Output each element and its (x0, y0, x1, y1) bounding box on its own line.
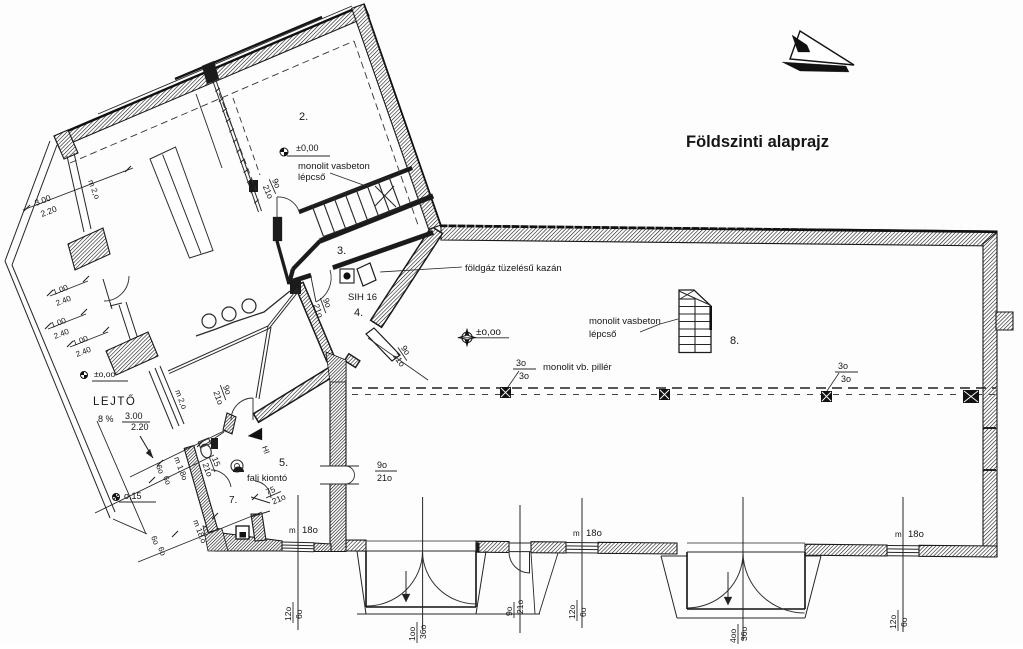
svg-text:fali kiontó: fali kiontó (247, 473, 287, 484)
svg-text:lépcső: lépcső (589, 329, 616, 340)
svg-text:3.: 3. (337, 245, 346, 257)
svg-text:3.00: 3.00 (125, 411, 143, 421)
svg-text:±o,oo: ±o,oo (94, 369, 115, 379)
svg-text:12o: 12o (888, 615, 898, 629)
svg-text:6o: 6o (899, 617, 909, 627)
svg-text:monolit vasbeton: monolit vasbeton (589, 316, 661, 327)
svg-text:12o: 12o (567, 605, 577, 619)
svg-text:3o: 3o (519, 371, 529, 381)
svg-text:12o: 12o (283, 607, 293, 621)
svg-text:monolit vb. pillér: monolit vb. pillér (543, 362, 612, 373)
svg-text:m: m (895, 530, 902, 539)
svg-text:földgáz tüzelésű kazán: földgáz tüzelésű kazán (465, 263, 562, 274)
svg-text:3o: 3o (516, 358, 526, 368)
svg-text:8.: 8. (730, 335, 739, 347)
svg-text:±0,00: ±0,00 (296, 143, 318, 153)
svg-text:7.: 7. (229, 495, 237, 506)
svg-text:18o: 18o (302, 525, 318, 536)
svg-text:18o: 18o (908, 529, 924, 540)
svg-text:4oo: 4oo (728, 629, 738, 643)
svg-text:3o: 3o (841, 374, 851, 384)
svg-text:6o: 6o (294, 609, 304, 619)
svg-text:SIH 16: SIH 16 (348, 292, 377, 303)
svg-text:Földszinti alaprajz: Földszinti alaprajz (686, 133, 829, 151)
svg-text:LEJTŐ: LEJTŐ (93, 394, 136, 408)
svg-text:36o: 36o (418, 625, 428, 639)
svg-text:o,15: o,15 (124, 491, 142, 501)
svg-text:5.: 5. (279, 457, 288, 469)
svg-text:2.: 2. (299, 111, 308, 123)
svg-text:18o: 18o (586, 528, 602, 539)
svg-text:8 %: 8 % (98, 414, 114, 424)
svg-text:9o: 9o (504, 606, 514, 616)
svg-text:2.20: 2.20 (131, 422, 149, 432)
svg-text:21o: 21o (377, 473, 392, 483)
svg-text:9o: 9o (377, 460, 387, 470)
svg-text:±o,oo: ±o,oo (476, 327, 501, 338)
svg-text:21o: 21o (515, 600, 525, 614)
svg-text:4.: 4. (354, 307, 363, 319)
svg-text:m: m (289, 526, 296, 535)
svg-text:36o: 36o (739, 627, 749, 641)
svg-text:m: m (573, 529, 580, 538)
svg-text:3o: 3o (838, 361, 848, 371)
svg-text:lépcső: lépcső (298, 172, 325, 183)
svg-text:monolit vasbeton: monolit vasbeton (298, 161, 370, 172)
svg-text:6o: 6o (578, 607, 588, 617)
svg-text:1oo: 1oo (407, 627, 417, 641)
